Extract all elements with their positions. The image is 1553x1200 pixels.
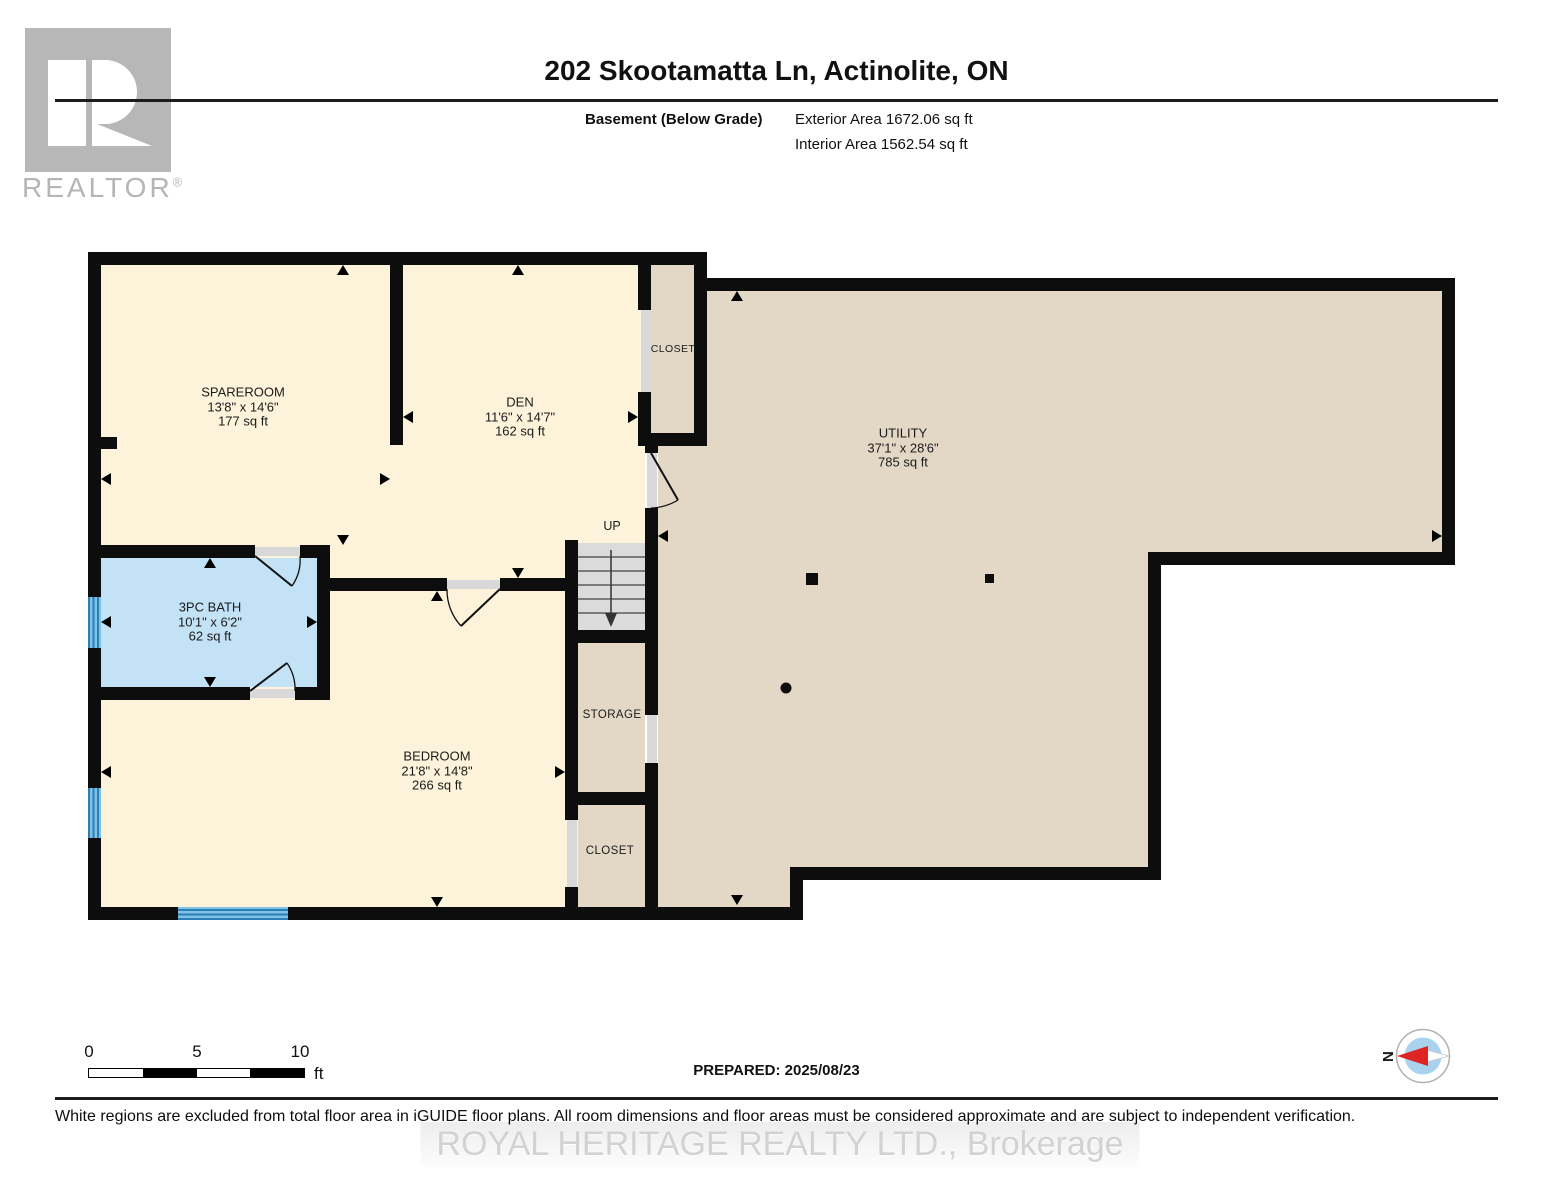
room-fill-utility-tab [658,867,790,907]
dimension-arrow-right [1432,530,1442,542]
label-closet-top: CLOSET [651,343,695,355]
wall-stub-left [101,437,117,449]
room-name: DEN [485,395,555,410]
wall-storage-bottom [565,792,658,805]
label-bath: 3PC BATH 10'1" x 6'2" 62 sq ft [178,600,242,644]
wall-column-right-a [645,446,658,453]
dimension-arrow-up [512,265,524,275]
dimension-arrow-up [337,265,349,275]
header-divider [55,99,1498,102]
dimension-arrow-down [731,895,743,905]
room-name: BEDROOM [401,749,472,764]
dimension-arrow-down [512,568,524,578]
disclaimer-text: White regions are excluded from total fl… [55,1108,1355,1126]
opening-bath-bottom-door [250,689,295,698]
interior-area: Interior Area 1562.54 sq ft [795,136,968,153]
floor-label: Basement (Below Grade) [585,111,763,128]
dimension-arrow-left [101,473,111,485]
wall-closet-top-bottom [638,433,707,446]
wall-top [88,252,707,265]
dimension-arrow-down [431,897,443,907]
dimension-arrow-left [403,411,413,423]
wall-closet-top-left-a [638,265,651,310]
room-dims: 10'1" x 6'2" [178,615,242,630]
room-area: 62 sq ft [178,629,242,644]
wall-bath-top-a [88,545,255,558]
label-den: DEN 11'6" x 14'7" 162 sq ft [485,395,555,439]
label-bedroom: BEDROOM 21'8" x 14'8" 266 sq ft [401,749,472,793]
dimension-arrow-up [731,291,743,301]
room-area: 162 sq ft [485,424,555,439]
dimension-arrow-right [380,473,390,485]
room-area: 266 sq ft [401,778,472,793]
dimension-arrow-up [204,558,216,568]
label-spareroom: SPAREROOM 13'8" x 14'6" 177 sq ft [201,385,285,429]
wall-spareroom-den-divider [390,265,403,445]
room-fill-stairs [578,543,645,630]
dimension-arrow-left [658,530,668,542]
wall-column-left-b [565,887,578,907]
registered-mark: ® [173,175,186,190]
dimension-arrow-down [204,677,216,687]
opening-utility-door [647,453,657,508]
wall-utility-right [1442,278,1455,565]
label-utility: UTILITY 37'1" x 28'6" 785 sq ft [867,426,938,470]
exterior-area: Exterior Area 1672.06 sq ft [795,111,973,128]
room-name: UTILITY [867,426,938,441]
scale-label-5: 5 [192,1042,201,1062]
floorplan-page: REALTOR® 202 Skootamatta Ln, Actinolite,… [0,0,1553,1200]
label-closet-bottom: CLOSET [586,845,634,857]
opening-closet-top [641,310,651,392]
room-name: SPAREROOM [201,385,285,400]
dimension-arrow-right [555,766,565,778]
dimension-arrow-left [101,766,111,778]
opening-bath-top-door [255,547,300,556]
dimension-arrow-right [307,616,317,628]
scale-label-0: 0 [84,1042,93,1062]
wall-column-right-c [645,763,658,907]
label-storage: STORAGE [583,709,642,721]
dimension-arrow-right [628,411,638,423]
wall-closet-top-left-b [638,392,651,433]
window-bath-left [88,597,101,648]
room-dims: 37'1" x 28'6" [867,441,938,456]
opening-closet-bottom [567,820,577,887]
wall-stairs-bottom [565,630,658,643]
room-area: 177 sq ft [201,414,285,429]
wall-bedroom-top-b [500,578,565,591]
dimension-arrow-up [431,591,443,601]
wall-notch-horizontal [1148,552,1455,565]
wall-utility-bottom [790,867,1161,880]
wall-bath-right [317,545,330,700]
room-area: 785 sq ft [867,455,938,470]
wall-bath-bottom-a [88,687,250,700]
wall-utility-top [700,278,1455,291]
realtor-text: REALTOR [22,172,173,203]
room-fill-utility-main [658,446,1148,867]
window-bedroom-left [88,788,101,838]
brokerage-watermark: ROYAL HERITAGE REALTY LTD., Brokerage [420,1122,1139,1167]
opening-bedroom-door [447,580,500,589]
dimension-arrow-down [337,535,349,545]
opening-storage [647,715,657,763]
wall-notch-vertical [1148,552,1161,880]
room-dims: 11'6" x 14'7" [485,410,555,425]
label-stairs-up: UP [603,519,620,533]
wall-column-left-a [565,540,578,820]
room-dims: 21'8" x 14'8" [401,764,472,779]
realtor-wordmark: REALTOR® [22,172,185,204]
footer-divider [55,1097,1498,1100]
page-title: 202 Skootamatta Ln, Actinolite, ON [0,55,1553,87]
room-dims: 13'8" x 14'6" [201,400,285,415]
dimension-arrow-left [101,616,111,628]
wall-column-right-b [645,508,658,715]
wall-bedroom-top-a [330,578,447,591]
scale-label-10: 10 [291,1042,310,1062]
prepared-date: PREPARED: 2025/08/23 [0,1062,1553,1079]
room-name: 3PC BATH [178,600,242,615]
wall-closet-top-right [694,252,707,446]
wall-bath-bottom-b [295,687,330,700]
compass-north-label: N [1380,1051,1397,1062]
window-bedroom-bottom [178,907,288,920]
